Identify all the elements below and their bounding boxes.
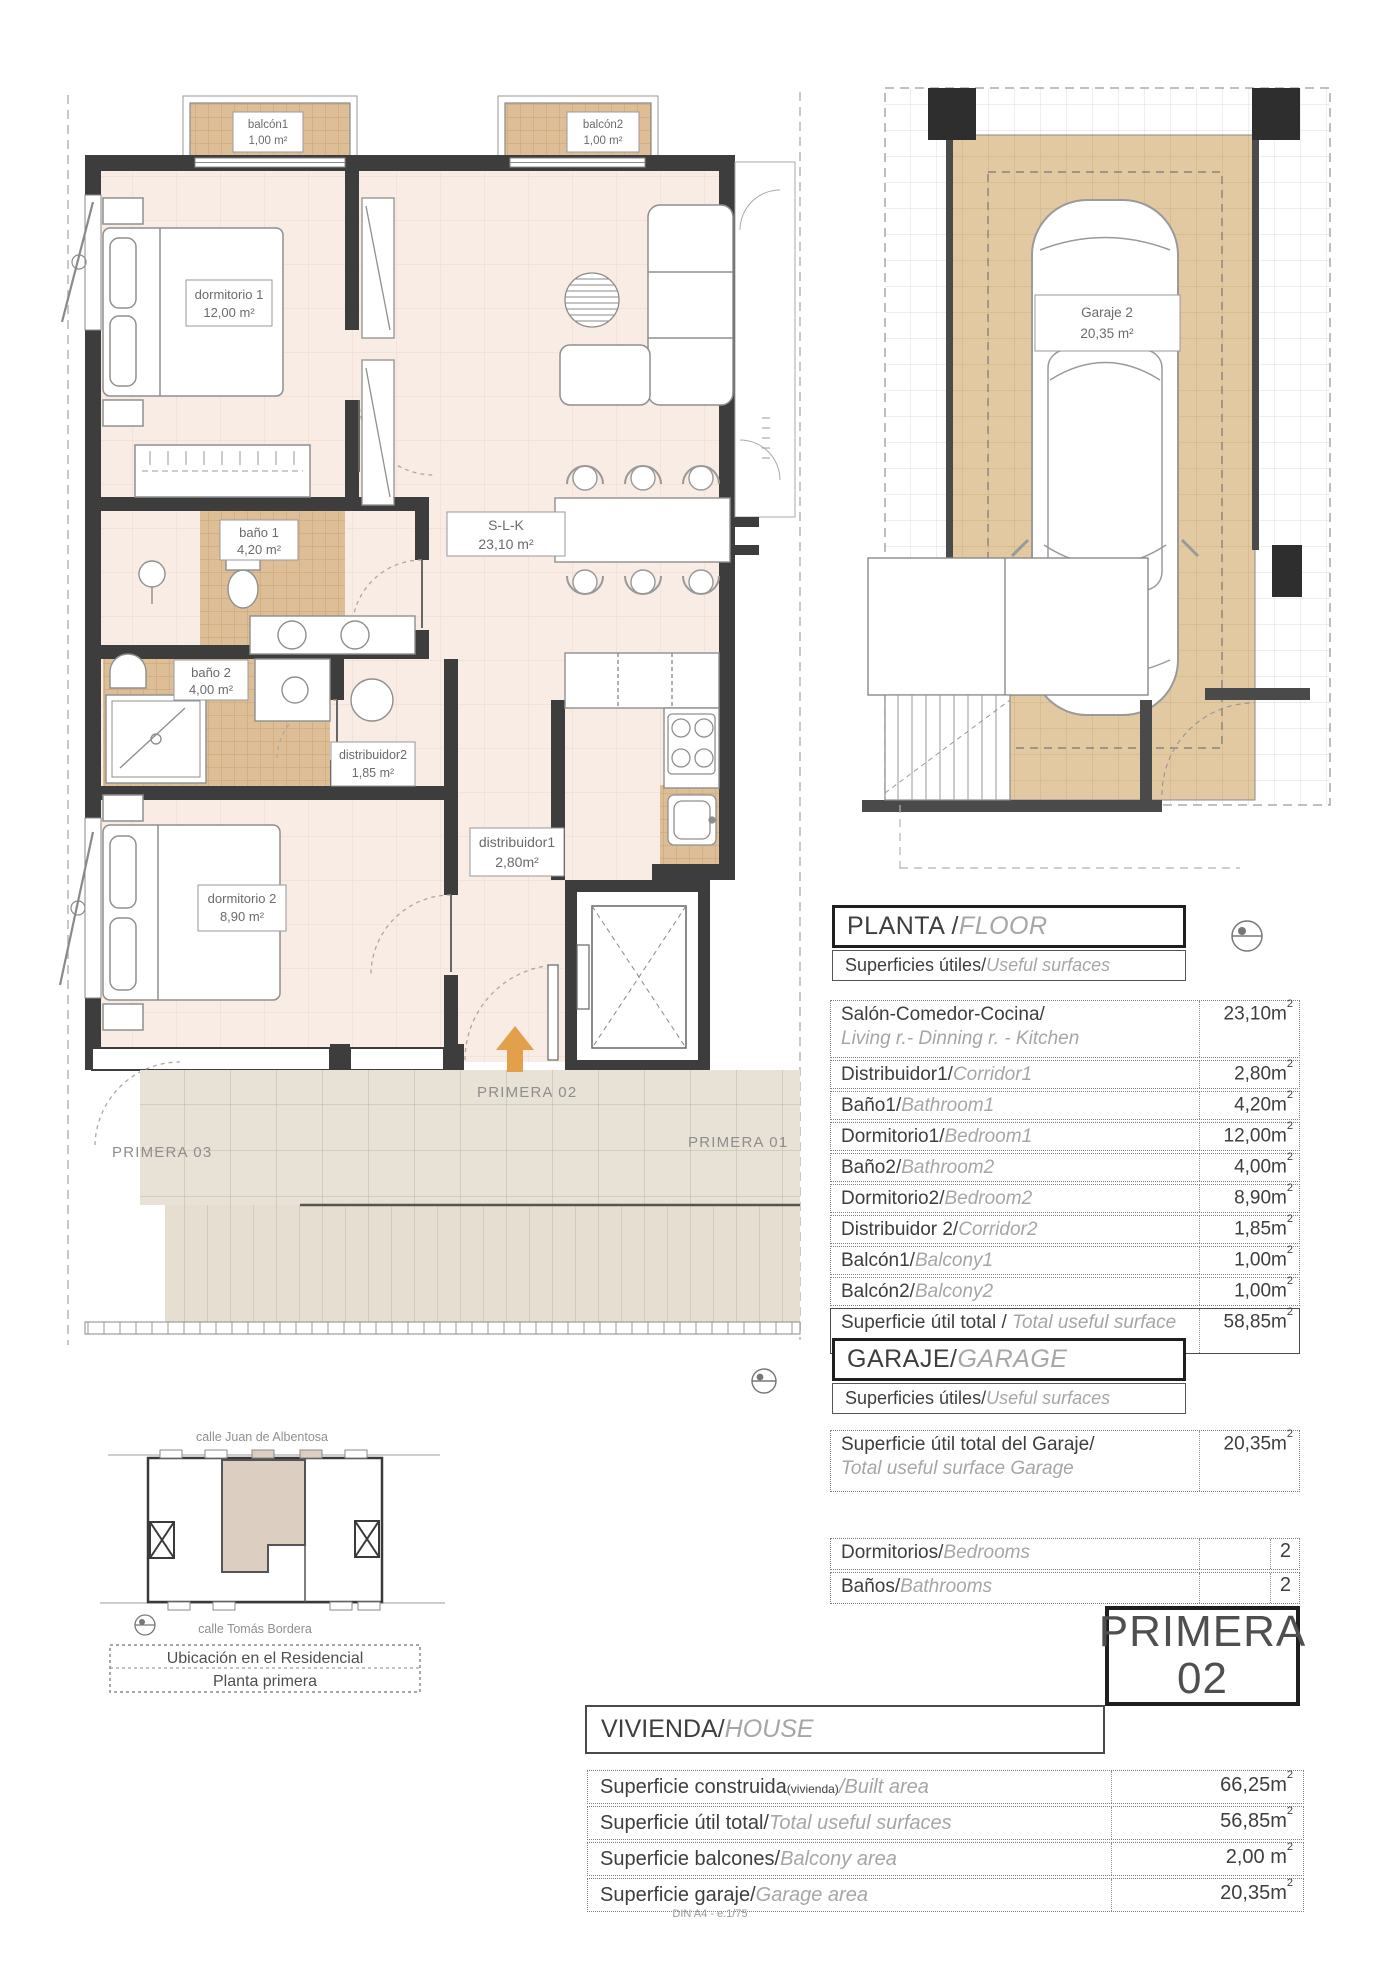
- floor-table-subheader: Superficies útiles/Useful surfaces: [832, 950, 1186, 981]
- house-table-header: VIVIENDA/HOUSE: [585, 1705, 1105, 1754]
- annotation-primera-03: PRIMERA 03: [112, 1144, 212, 1161]
- compass-icon: [752, 1369, 776, 1393]
- garage-area-table: Superficie útil total del Garaje/ Total …: [830, 1428, 1300, 1492]
- svg-text:4,20 m²: 4,20 m²: [237, 542, 282, 557]
- elevator: [577, 906, 686, 1048]
- table-row: Baño1/Bathroom1 4,20m2: [830, 1091, 1300, 1120]
- apartment-plan: balcón1 1,00 m² balcón2 1,00 m² dormitor…: [60, 92, 800, 1345]
- table-row: Dormitorio1/Bedroom1 12,00m2: [830, 1122, 1300, 1151]
- table-row: Salón-Comedor-Cocina/ Living r.- Dinning…: [830, 1000, 1300, 1058]
- garage-table-header: GARAJE/GARAGE: [832, 1338, 1186, 1381]
- table-row: Balcón1/Balcony1 1,00m2: [830, 1246, 1300, 1275]
- floor-title-es: PLANTA /: [847, 912, 959, 941]
- svg-text:1,85 m²: 1,85 m²: [352, 766, 394, 780]
- table-row: Superficie balcones/Balcony area 2,00 m2: [587, 1842, 1304, 1876]
- svg-text:12,00 m²: 12,00 m²: [203, 305, 255, 320]
- table-row: Superficie útil total/Total useful surfa…: [587, 1806, 1304, 1840]
- unit-badge-line2: 02: [1177, 1656, 1228, 1703]
- table-row: Balcón2/Balcony2 1,00m2: [830, 1277, 1300, 1306]
- svg-text:23,10 m²: 23,10 m²: [478, 536, 534, 552]
- sheet-scale-note: DIN A4 - e.1/75: [640, 1908, 780, 1920]
- unit-badge: PRIMERA 02: [1105, 1606, 1300, 1706]
- architectural-sheet: balcón1 1,00 m² balcón2 1,00 m² dormitor…: [0, 0, 1400, 1980]
- stove-icon: [668, 714, 715, 774]
- annotation-primera-01: PRIMERA 01: [688, 1134, 788, 1151]
- house-areas-table: Superficie construida(vivienda)/Built ar…: [587, 1768, 1304, 1912]
- garage-table-subheader: Superficies útiles/Useful surfaces: [832, 1383, 1186, 1414]
- svg-text:1,00 m²: 1,00 m²: [249, 135, 288, 147]
- room-label: baño 2: [191, 665, 231, 680]
- svg-text:4,00 m²: 4,00 m²: [189, 682, 234, 697]
- svg-text:1,00 m²: 1,00 m²: [584, 135, 623, 147]
- table-row: Superficie útil total del Garaje/ Total …: [830, 1430, 1300, 1492]
- garage-stairs: [885, 695, 1010, 800]
- table-row: Baños/Bathrooms 2: [830, 1572, 1300, 1604]
- table-row: Dormitorio2/Bedroom2 8,90m2: [830, 1184, 1300, 1213]
- location-caption-1: Ubicación en el Residencial: [167, 1650, 364, 1667]
- table-row: Distribuidor1/Corridor1 2,80m2: [830, 1060, 1300, 1089]
- terrace: [85, 1070, 800, 1334]
- room-label: dormitorio 1: [195, 287, 264, 302]
- street-bottom-label: calle Tomás Bordera: [198, 1622, 312, 1636]
- annotation-primera-02: PRIMERA 02: [477, 1084, 577, 1101]
- street-top-label: calle Juan de Albentosa: [196, 1430, 328, 1444]
- floor-title-en: FLOOR: [959, 912, 1048, 941]
- room-label: distribuidor2: [339, 748, 407, 762]
- side-gallery: [735, 162, 795, 555]
- unit-badge-line1: PRIMERA: [1099, 1609, 1306, 1656]
- floor-table-header: PLANTA / FLOOR: [832, 905, 1186, 948]
- svg-text:8,90 m²: 8,90 m²: [220, 909, 265, 924]
- coffee-table: [565, 273, 619, 327]
- room-label: baño 1: [239, 525, 279, 540]
- counts-table: Dormitorios/Bedrooms 2 Baños/Bathrooms 2: [830, 1536, 1300, 1604]
- location-plan: calle Juan de Albentosa calle Tomás Bord…: [100, 1430, 445, 1692]
- room-label: balcón1: [248, 119, 288, 131]
- table-row: Dormitorios/Bedrooms 2: [830, 1538, 1300, 1570]
- svg-text:20,35 m²: 20,35 m²: [1080, 326, 1134, 341]
- table-row: Distribuidor 2/Corridor2 1,85m2: [830, 1215, 1300, 1244]
- room-label: balcón2: [583, 119, 623, 131]
- table-row: Superficie construida(vivienda)/Built ar…: [587, 1770, 1304, 1804]
- location-caption-2: Planta primera: [213, 1673, 317, 1690]
- dining-table: [555, 466, 730, 594]
- svg-text:2,80m²: 2,80m²: [495, 854, 539, 870]
- compass-icon: [1232, 921, 1262, 951]
- room-label: distribuidor1: [479, 834, 555, 850]
- floor-areas-table: Salón-Comedor-Cocina/ Living r.- Dinning…: [830, 998, 1300, 1354]
- room-label: S-L-K: [488, 517, 524, 533]
- garage-label: Garaje 2: [1081, 305, 1133, 320]
- kitchen-sink-icon: [668, 795, 716, 845]
- room-label: dormitorio 2: [208, 891, 277, 906]
- table-row: Superficie garaje/Garage area 20,35m2: [587, 1878, 1304, 1912]
- wardrobe: [135, 445, 310, 497]
- garage-plan: Garaje 2 20,35 m²: [862, 88, 1330, 870]
- table-row: Baño2/Bathroom2 4,00m2: [830, 1153, 1300, 1182]
- compass-icon: [135, 1615, 155, 1635]
